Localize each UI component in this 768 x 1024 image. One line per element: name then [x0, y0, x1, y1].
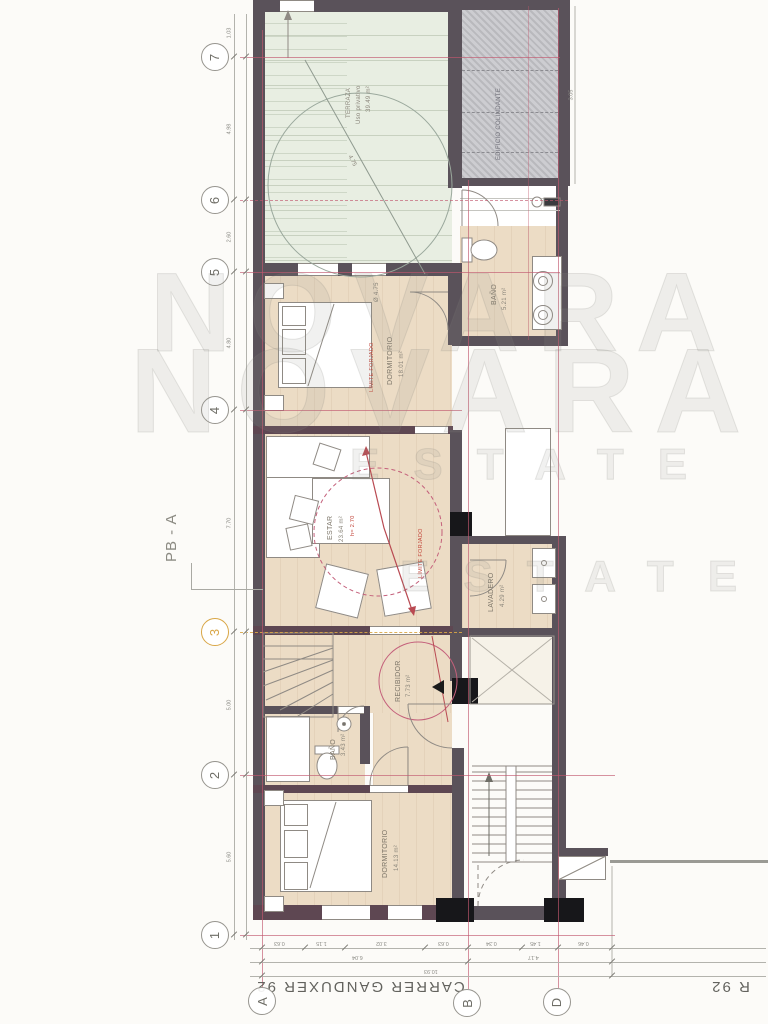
section-marker-icon: [432, 680, 444, 694]
grid-bubble-3: 3: [201, 618, 229, 646]
bath-top-label: BAÑO: [491, 284, 498, 305]
bedroom1-label: DORMITORIO: [387, 337, 394, 385]
dim-value: 4.98: [226, 124, 232, 135]
adjacent-building-label: EDIFICIO COLINDANTE: [496, 88, 502, 160]
dim-line-left-1: [234, 14, 235, 940]
dim-value: 0.63: [438, 940, 449, 946]
axis-col-D: [558, 8, 559, 988]
red-arrowhead-icon: [408, 606, 416, 616]
plan-code-label: PB - A: [163, 513, 180, 562]
hall-label: RECIBIDOR: [395, 660, 402, 702]
grid-bubble-A: A: [248, 987, 276, 1015]
circle-label: Ø 4.75: [374, 282, 380, 302]
laundry-label: LAVADERO: [488, 573, 495, 613]
bed1-fold: [308, 304, 334, 386]
plan-code-leader-v: [191, 563, 192, 589]
terrace-area: 39.49 m²: [366, 86, 372, 112]
bedroom2-label: DORMITORIO: [382, 830, 389, 878]
living-red-line: [366, 452, 412, 610]
grid-bubble-1: 1: [201, 921, 229, 949]
dim-line-bottom-2: [250, 962, 766, 963]
street-label: CARRER GANDUXER 92: [240, 978, 480, 995]
dim-value: 5.60: [226, 852, 232, 863]
living-note: h= 2.70: [350, 515, 356, 536]
dim-value: 4.80: [226, 338, 232, 349]
dim-value: 3.05: [568, 90, 574, 101]
red-arrowhead-icon: [362, 446, 370, 456]
terrace-diameter-line: [305, 60, 425, 274]
axis-row-3: [240, 632, 462, 633]
dim-value: 4.17: [528, 954, 539, 960]
dim-line-bottom-1: [250, 948, 766, 949]
dim-value: 7.70: [226, 518, 232, 529]
bath-fixtures: [315, 197, 560, 779]
terrace-label: TERRAZA: [346, 88, 352, 118]
plan-code-leader-h: [191, 589, 263, 590]
dim-line-bottom-3: [250, 976, 766, 977]
bed2-fold: [310, 802, 336, 888]
dim-line-left-2: [246, 14, 247, 940]
grid-bubble-5: 5: [201, 258, 229, 286]
dim-value: 1.45: [530, 940, 541, 946]
living-label: ESTAR: [327, 516, 334, 540]
axis-row-7: [240, 57, 560, 58]
dim-value: 6.04: [352, 954, 363, 960]
bath2-area: 3.43 m²: [341, 734, 347, 756]
bath2-label: BAÑO: [330, 739, 337, 760]
grid-bubble-B: B: [453, 989, 481, 1017]
axis-col-A: [262, 30, 263, 987]
street-label-fragment: R 92: [700, 978, 760, 995]
axis-col-B: [468, 180, 469, 989]
arrow-up-icon: [284, 10, 292, 20]
stair-door-swing: [478, 860, 524, 906]
dim-value: 10.93: [424, 968, 438, 974]
door-swings: [338, 190, 506, 785]
red-note-1: LÍMITE FORJADO: [369, 342, 375, 392]
communal-stair: [472, 766, 552, 862]
laundry-area: 4.29 m²: [500, 585, 506, 607]
dim-value: 3.02: [376, 940, 387, 946]
living-area: 23.64 m²: [339, 516, 345, 542]
winder-stair: [263, 633, 333, 717]
dim-value: 0.63: [274, 940, 285, 946]
grid-bubble-7: 7: [201, 43, 229, 71]
dim-value: 0.34: [486, 940, 497, 946]
axis-col-C: [528, 6, 529, 340]
terrace-sublabel: Uso privativo: [356, 85, 362, 124]
grid-bubble-D: D: [543, 988, 571, 1016]
dim-value: 5.00: [226, 700, 232, 711]
grid-bubble-6: 6: [201, 186, 229, 214]
dim-value: 1.03: [226, 28, 232, 39]
bath-top-area: 5.21 m²: [502, 288, 508, 310]
side-box-diagonal: [558, 856, 606, 880]
axis-row-6: [240, 200, 568, 201]
hall-area: 7.73 m²: [406, 675, 412, 697]
axis-row-5: [240, 272, 560, 273]
grid-bubble-4: 4: [201, 396, 229, 424]
dim-value: 0.46: [578, 940, 589, 946]
grid-bubble-2: 2: [201, 761, 229, 789]
dim-value: 1.15: [316, 940, 327, 946]
dim-value: 2.60: [226, 232, 232, 243]
red-note-2: LÍMITE FORJADO: [418, 528, 424, 578]
floor-plan-sheet: 7 6 5 4 3 2 1 A B D 1.03 4.98 2.60 4.80 …: [0, 0, 768, 1024]
bedroom1-area: 18.01 m²: [399, 351, 405, 377]
bedroom2-area: 14.13 m²: [394, 845, 400, 871]
stair-arrow-icon: [485, 772, 493, 782]
axis-row-4: [240, 410, 462, 411]
